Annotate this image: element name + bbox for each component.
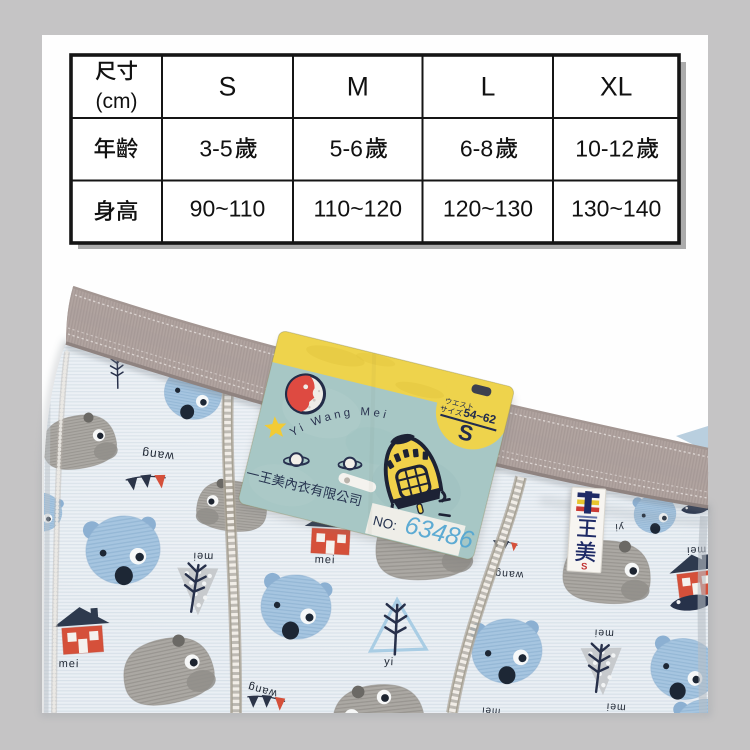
svg-text:(cm): (cm) <box>96 90 138 113</box>
svg-text:130~140: 130~140 <box>571 196 661 222</box>
svg-text:110~120: 110~120 <box>314 196 402 222</box>
svg-text:yi: yi <box>384 656 395 669</box>
svg-text:S: S <box>581 561 588 572</box>
svg-text:M: M <box>347 72 369 102</box>
svg-text:mei: mei <box>594 626 615 639</box>
svg-text:mei: mei <box>192 550 213 563</box>
svg-text:90~110: 90~110 <box>190 196 266 222</box>
svg-text:6-8: 6-8 <box>460 136 493 162</box>
svg-text:3-5: 3-5 <box>199 136 232 162</box>
svg-text:L: L <box>481 72 496 102</box>
svg-text:mei: mei <box>59 658 80 670</box>
svg-text:XL: XL <box>600 72 632 102</box>
svg-text:yi: yi <box>614 521 624 532</box>
svg-text:S: S <box>219 72 237 102</box>
svg-text:mei: mei <box>315 554 336 567</box>
svg-text:5-6: 5-6 <box>330 136 363 162</box>
svg-text:mei: mei <box>605 700 626 713</box>
svg-text:wang: wang <box>494 567 525 581</box>
svg-text:10-12: 10-12 <box>575 136 634 162</box>
svg-text:120~130: 120~130 <box>443 196 533 222</box>
